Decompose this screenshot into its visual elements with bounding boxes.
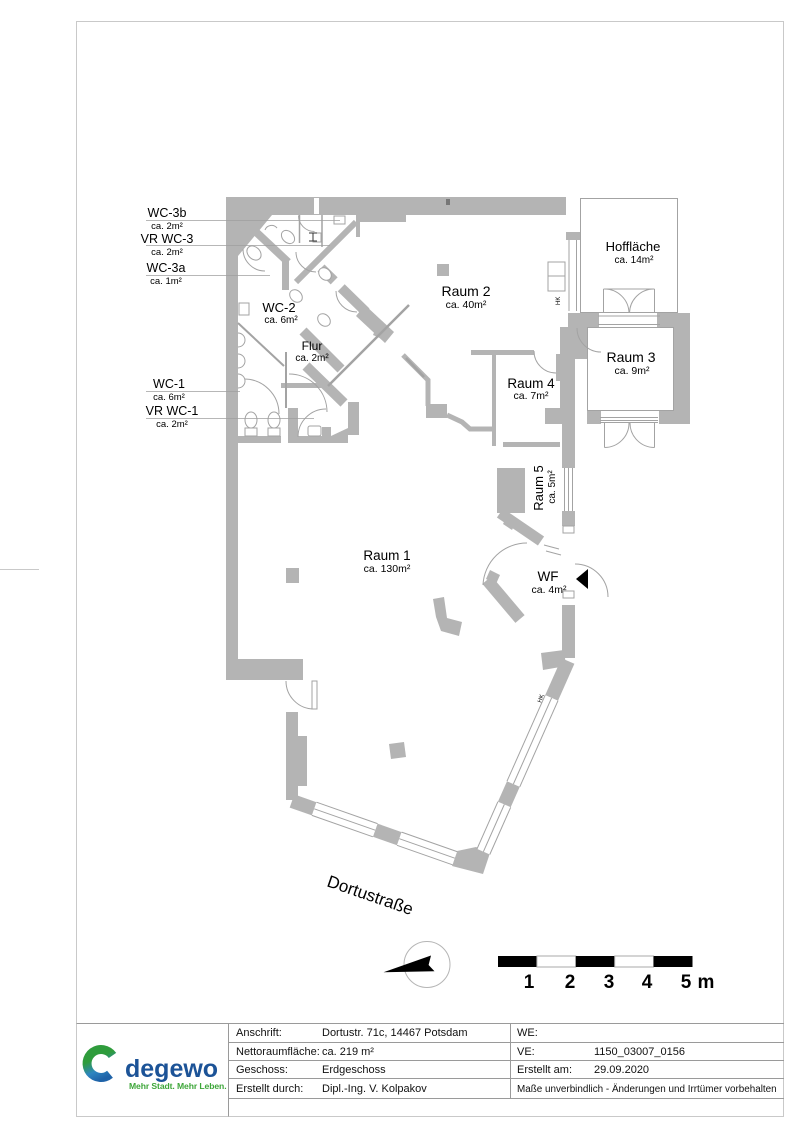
svg-text:ca. 2m²: ca. 2m²	[156, 419, 188, 430]
svg-text:Anschrift:: Anschrift:	[236, 1027, 282, 1039]
svg-text:WC-3a: WC-3a	[147, 261, 186, 275]
svg-text:HK: HK	[556, 297, 562, 305]
svg-text:ca. 5m²: ca. 5m²	[547, 470, 558, 504]
svg-text:Raum 4: Raum 4	[507, 376, 555, 391]
svg-text:degewo: degewo	[125, 1055, 218, 1083]
svg-text:Dortustr. 71c, 14467 Potsdam: Dortustr. 71c, 14467 Potsdam	[322, 1027, 468, 1039]
svg-text:ca. 4m²: ca. 4m²	[531, 584, 567, 596]
svg-text:1: 1	[524, 972, 535, 993]
svg-text:WC-3b: WC-3b	[148, 206, 187, 220]
svg-text:Raum 5: Raum 5	[531, 465, 546, 511]
svg-text:Dortustraße: Dortustraße	[325, 872, 416, 919]
svg-text:3: 3	[604, 972, 615, 993]
svg-text:WE:: WE:	[517, 1027, 538, 1039]
svg-text:Erstellt durch:: Erstellt durch:	[236, 1083, 303, 1095]
svg-text:ca. 40m²: ca. 40m²	[446, 299, 487, 311]
svg-text:WC-2: WC-2	[262, 300, 295, 315]
svg-text:Raum 3: Raum 3	[606, 349, 655, 365]
svg-text:Raum 2: Raum 2	[441, 283, 490, 299]
svg-text:VR WC-3: VR WC-3	[141, 232, 194, 246]
svg-text:1150_03007_0156: 1150_03007_0156	[594, 1046, 685, 1058]
svg-text:Dipl.-Ing. V. Kolpakov: Dipl.-Ing. V. Kolpakov	[322, 1083, 427, 1095]
svg-text:ca. 14m²: ca. 14m²	[615, 255, 655, 266]
svg-text:Raum 1: Raum 1	[363, 548, 410, 563]
svg-text:Hoffläche: Hoffläche	[606, 239, 661, 254]
svg-text:ca. 2m²: ca. 2m²	[151, 247, 183, 258]
svg-text:ca. 219 m²: ca. 219 m²	[322, 1046, 374, 1058]
svg-text:ca. 1m²: ca. 1m²	[150, 276, 182, 287]
svg-text:4: 4	[642, 972, 653, 993]
svg-text:Erdgeschoss: Erdgeschoss	[322, 1064, 386, 1076]
svg-text:ca. 2m²: ca. 2m²	[151, 221, 183, 232]
svg-text:Nettoraumfläche:: Nettoraumfläche:	[236, 1046, 320, 1058]
svg-text:ca. 130m²: ca. 130m²	[364, 563, 411, 575]
svg-text:ca. 6m²: ca. 6m²	[153, 392, 185, 403]
svg-text:ca. 6m²: ca. 6m²	[264, 315, 298, 326]
svg-text:WC-1: WC-1	[153, 377, 185, 391]
svg-text:5: 5	[681, 972, 692, 993]
svg-text:m: m	[698, 972, 715, 993]
svg-text:Erstellt am:: Erstellt am:	[517, 1064, 572, 1076]
svg-text:ca. 9m²: ca. 9m²	[614, 365, 650, 377]
svg-text:2: 2	[565, 972, 576, 993]
svg-text:VE:: VE:	[517, 1046, 535, 1058]
svg-text:WF: WF	[538, 569, 559, 584]
svg-text:ca. 2m²: ca. 2m²	[295, 353, 329, 364]
svg-text:29.09.2020: 29.09.2020	[594, 1064, 649, 1076]
svg-text:Flur: Flur	[302, 339, 323, 353]
svg-text:Maße unverbindlich - Änderunge: Maße unverbindlich - Änderungen und Irrt…	[517, 1084, 777, 1095]
svg-text:Mehr Stadt. Mehr Leben.: Mehr Stadt. Mehr Leben.	[129, 1081, 227, 1091]
svg-text:VR WC-1: VR WC-1	[146, 404, 199, 418]
svg-text:ca. 7m²: ca. 7m²	[513, 390, 549, 402]
svg-text:Geschoss:: Geschoss:	[236, 1064, 288, 1076]
